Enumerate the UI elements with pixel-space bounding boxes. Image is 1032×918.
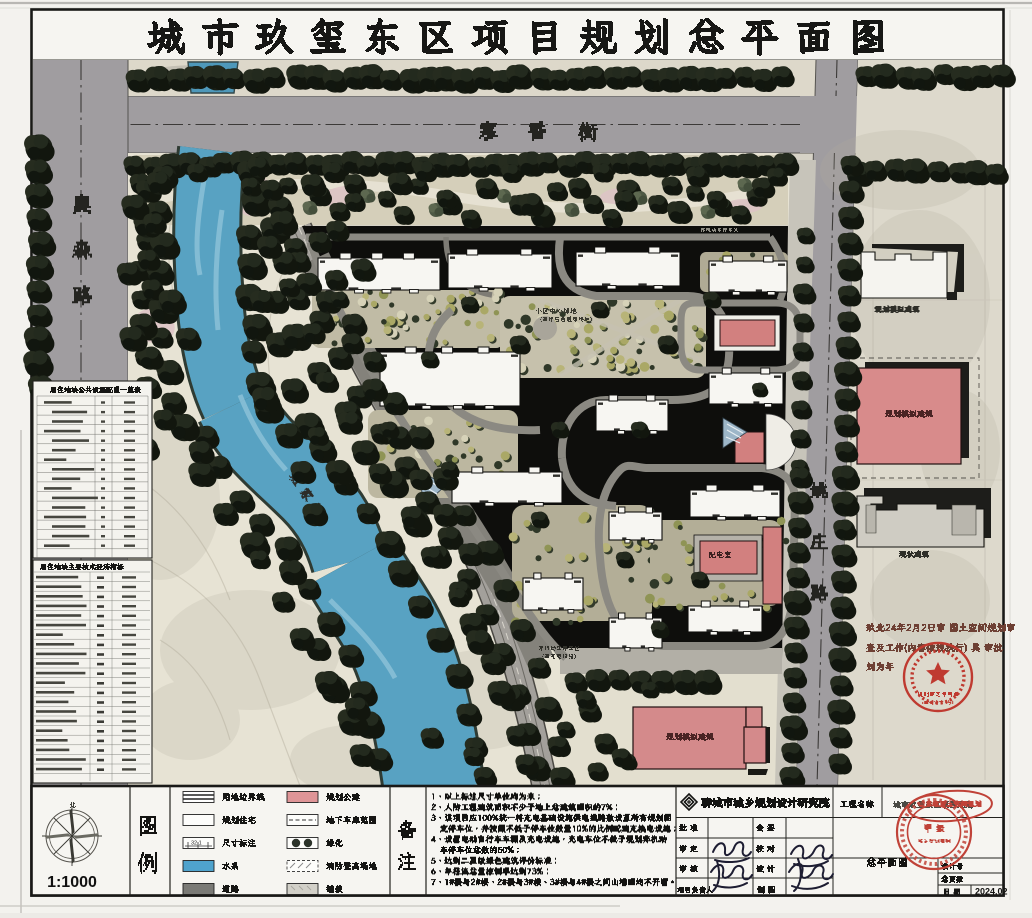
svg-text:1:1000: 1:1000 [47,874,97,891]
svg-text:2024.02: 2024.02 [975,887,1008,897]
svg-text:32.1: 32.1 [191,841,202,847]
